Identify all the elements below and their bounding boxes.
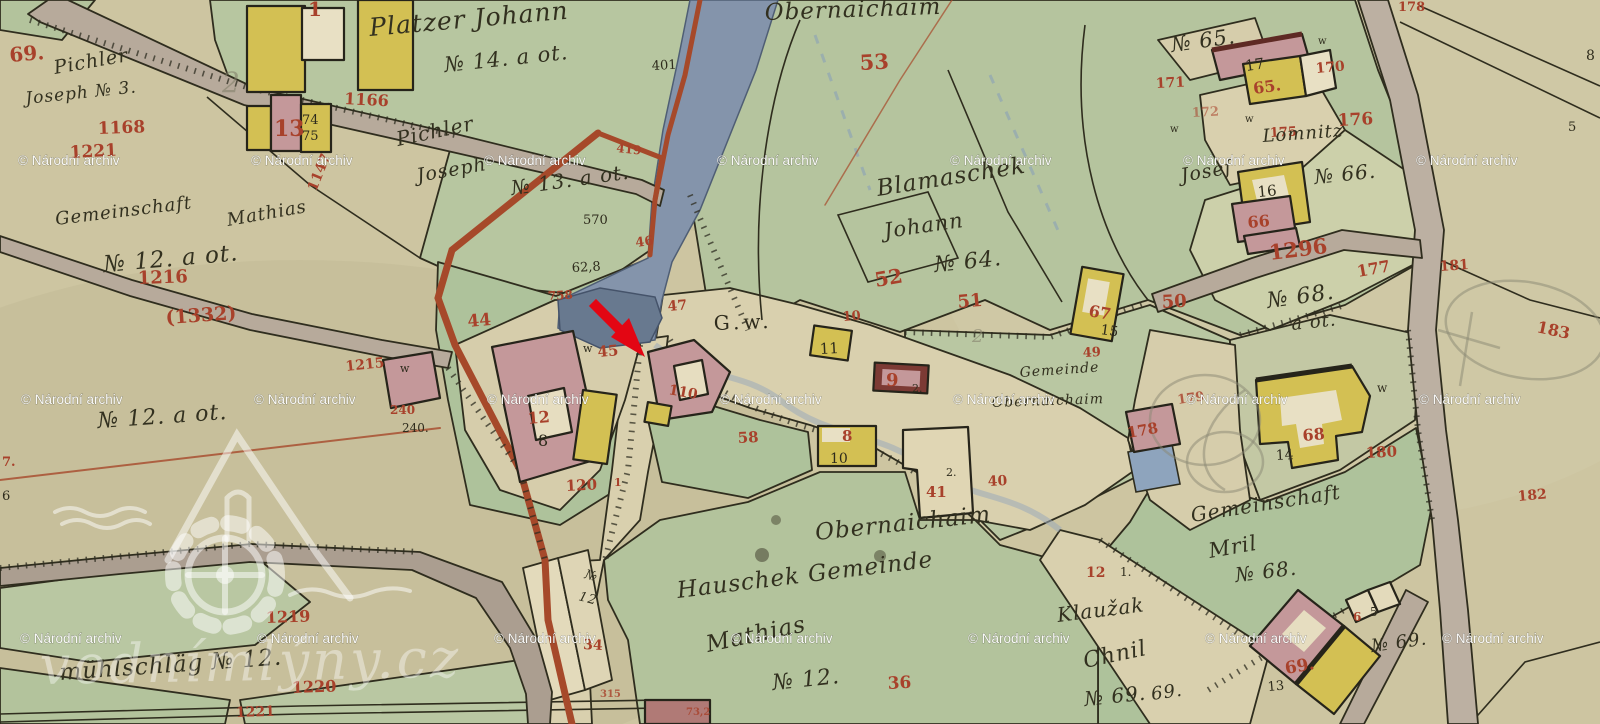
parcel-number-red: 58: [737, 428, 759, 447]
parcel-number-red: 419: [616, 141, 642, 158]
house-number-black: 10: [830, 451, 848, 467]
house-number-black: 74: [302, 113, 319, 128]
archive-watermark-text: © Národní archiv: [257, 631, 359, 646]
parcel-number-red: 53: [859, 48, 890, 74]
house-number-black: 8: [538, 431, 548, 450]
house-number-black: w: [1318, 36, 1327, 47]
building: [247, 6, 305, 92]
parcel-number-red: 180: [1365, 442, 1397, 462]
parcel-number-red: 8: [842, 427, 852, 445]
house-number-black: 240.: [402, 421, 429, 435]
parcel-number-red: 1: [614, 476, 622, 489]
parcel-number-red: 44: [467, 310, 492, 332]
archive-watermark-text: © Národní archiv: [731, 631, 833, 646]
pencil-note: 2: [971, 326, 983, 347]
house-number-black: w: [1377, 381, 1388, 395]
house-number-black: 15: [1099, 322, 1119, 340]
house-number-black: w: [400, 362, 410, 375]
house-number-black: 2.: [946, 466, 957, 479]
cadastral-map-canvas: 69.11311661168122111471216(1332)12152407…: [0, 0, 1600, 724]
parcel-number-red: 182: [1517, 486, 1548, 504]
parcel-number-red: 40: [987, 473, 1008, 490]
parcel-number-red: 6: [1353, 610, 1361, 624]
parcel-number-red: 10: [842, 308, 861, 325]
archive-watermark-text: © Národní archiv: [487, 392, 589, 407]
parcel-number-red: 66: [1247, 211, 1271, 232]
parcel-number-red: 9: [886, 370, 899, 391]
archive-watermark-text: © Národní archiv: [20, 631, 122, 646]
house-number-black: 1.: [1120, 565, 1131, 579]
archive-watermark-text: © Národní archiv: [18, 153, 120, 168]
parcel-number-red: 52: [873, 263, 905, 291]
archive-watermark-text: © Národní archiv: [1416, 153, 1518, 168]
ink-blot: [755, 548, 769, 562]
parcel-number-red: 13: [274, 116, 305, 142]
parcel-number-red: 65.: [1252, 75, 1282, 98]
house-number-black: 401: [651, 58, 677, 74]
house-number-black: 16: [1257, 181, 1278, 201]
house-number-black: w: [1170, 124, 1179, 135]
house-number-black: w: [1245, 114, 1254, 125]
ink-blot: [771, 515, 781, 525]
house-number-black: 62,8: [571, 259, 601, 275]
archive-watermark-text: © Národní archiv: [1183, 153, 1285, 168]
archive-watermark-text: © Národní archiv: [1186, 392, 1288, 407]
water-wheel-hub-icon: [216, 566, 234, 584]
building: [247, 106, 271, 150]
archive-watermark-text: © Národní archiv: [717, 153, 819, 168]
parcel-number-red: 1: [308, 0, 322, 21]
house-number-black: 13: [1267, 679, 1285, 695]
archive-watermark-text: © Národní archiv: [494, 631, 596, 646]
parcel-number-red: 47: [667, 297, 688, 315]
house-number-black: 14: [1275, 447, 1294, 464]
parcel-number-red: 240: [390, 403, 415, 417]
parcel-number-red: 45: [597, 341, 619, 361]
house-number-black: 8: [1586, 48, 1595, 64]
parcel-number-red: 120: [565, 475, 597, 495]
parcel-number-red: 1168: [97, 117, 145, 139]
house-number-black: G.w.: [713, 309, 773, 335]
parcel-number-red: 50: [1161, 291, 1187, 313]
handwritten-label: 69.: [1150, 680, 1184, 705]
building: [644, 402, 671, 426]
archive-watermark-text: © Národní archiv: [484, 153, 586, 168]
house-number-black: 5: [1568, 120, 1576, 135]
parcel-number-red: 51: [957, 290, 984, 313]
parcel-number-red: 46: [634, 234, 654, 251]
house-number-black: 11: [819, 339, 839, 358]
parcel-number-red: 1221: [236, 704, 276, 721]
parcel-number-red: 12: [527, 407, 551, 428]
house-number-black: w: [583, 342, 593, 355]
archive-watermark-text: © Národní archiv: [953, 392, 1055, 407]
archive-watermark-text: © Národní archiv: [254, 392, 356, 407]
parcel-number-red: 1166: [344, 89, 389, 110]
parcel-number-red: 69.: [8, 40, 45, 67]
parcel-number-red: 68: [1302, 424, 1326, 445]
archive-watermark-text: © Národní archiv: [21, 392, 123, 407]
archive-watermark-text: © Národní archiv: [1442, 631, 1544, 646]
parcel-number-red: 172: [1191, 105, 1219, 121]
parcel-number-red: 36: [887, 673, 912, 694]
parcel-number-red: 12: [1086, 565, 1105, 581]
pencil-note: 2: [221, 66, 240, 99]
parcel-number-red: 178: [1398, 0, 1425, 15]
parcel-number-red: 67: [1087, 301, 1112, 324]
house-number-black: 2.: [912, 382, 923, 395]
archive-watermark-text: © Národní archiv: [1419, 392, 1521, 407]
house-number-black: 6: [2, 489, 10, 504]
parcel-number-red: 73,2: [686, 707, 710, 718]
archive-watermark-text: © Národní archiv: [251, 153, 353, 168]
parcel-number-red: 181: [1439, 257, 1469, 275]
parcel-number-red: 7.: [2, 455, 16, 470]
map-viewport: 69.11311661168122111471216(1332)12152407…: [0, 0, 1600, 724]
parcel-number-red: 315: [600, 689, 621, 700]
house-number-black: 5: [1370, 605, 1378, 619]
parcel-number-red: 758: [547, 288, 573, 303]
house-number-black: 570: [583, 213, 608, 228]
house-number-black: 75: [302, 129, 319, 144]
house-number-black: 17: [1244, 54, 1265, 74]
parcel-number-red: 171: [1155, 74, 1185, 92]
building: [301, 104, 331, 152]
parcel-number-red: 41: [926, 483, 947, 501]
archive-watermark-text: © Národní archiv: [720, 392, 822, 407]
archive-watermark-text: © Národní archiv: [968, 631, 1070, 646]
building: [383, 352, 440, 408]
archive-watermark-text: © Národní archiv: [950, 153, 1052, 168]
archive-watermark-text: © Národní archiv: [1205, 631, 1307, 646]
parcel-number-red: 170: [1315, 58, 1346, 77]
